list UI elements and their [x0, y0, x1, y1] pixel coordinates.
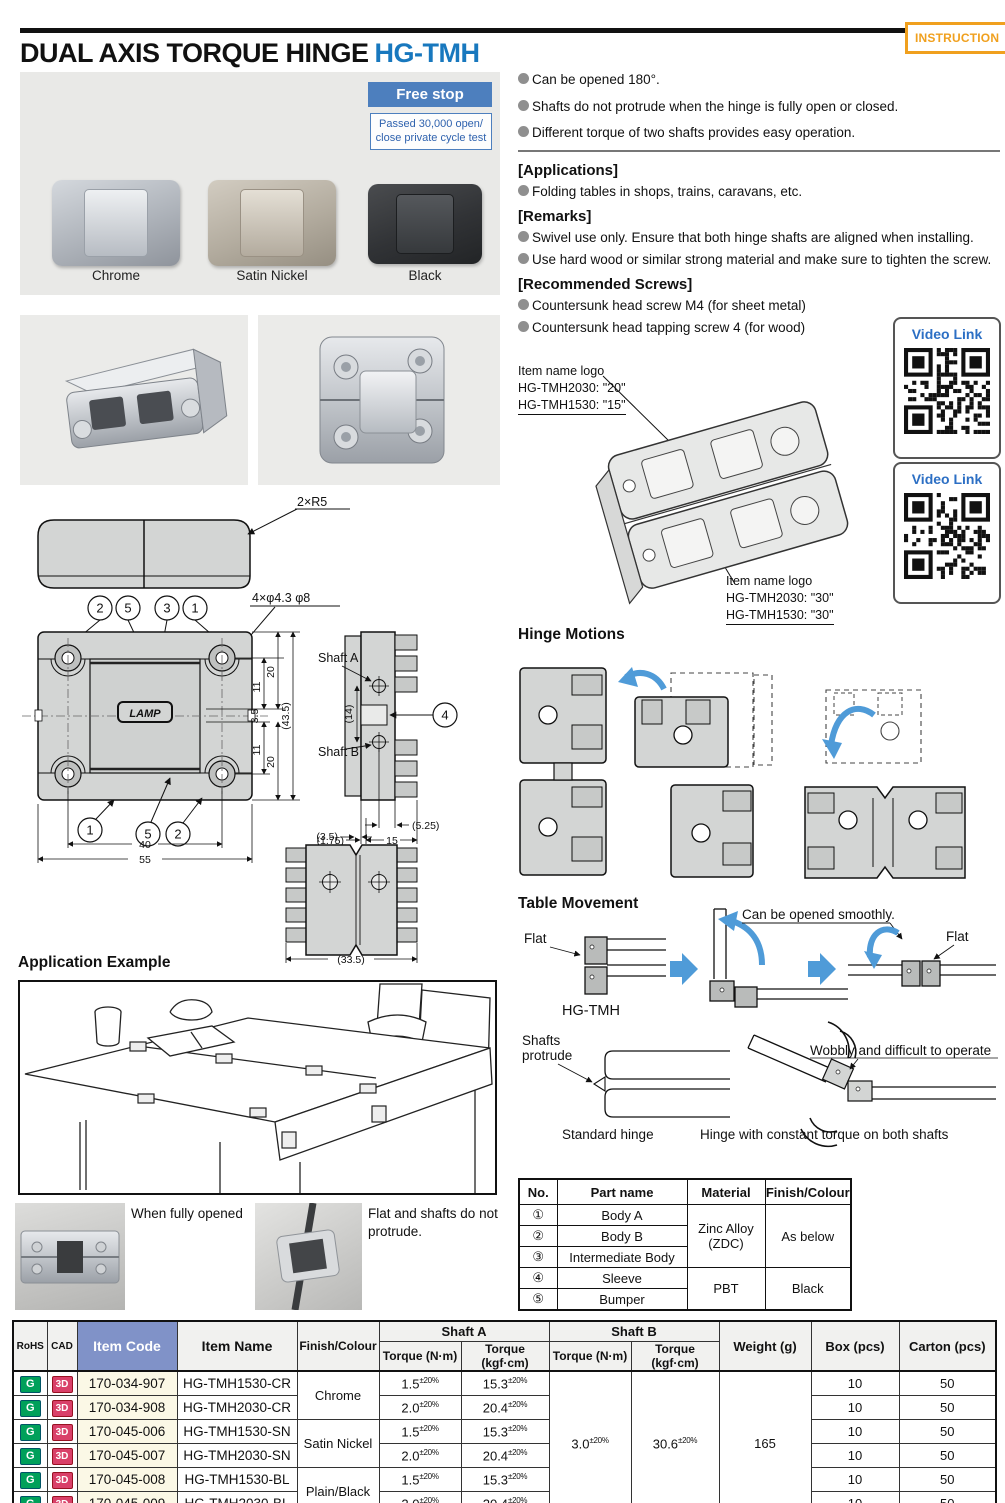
video-link-box[interactable]: Video Link: [893, 317, 1001, 459]
col-shaft-b: Shaft B: [549, 1321, 719, 1342]
parts-row: ① Body A Zinc Alloy (ZDC) As below: [519, 1205, 851, 1226]
feature-text: Can be opened 180°.: [532, 70, 660, 90]
hinge-motions-diagram: [518, 655, 1000, 890]
dim-20-top: 20: [265, 666, 277, 678]
annotation-line: Item name logo: [726, 573, 834, 590]
video-link-label[interactable]: Video Link: [895, 326, 999, 342]
carton-cell: 50: [899, 1371, 996, 1396]
torque-value: 2.0: [401, 1496, 419, 1503]
col-no: No.: [519, 1179, 557, 1205]
finish-label-chrome: Chrome: [52, 268, 180, 283]
rohs-badge[interactable]: G: [20, 1376, 41, 1393]
carton-cell: 50: [899, 1444, 996, 1468]
item-name-cell: HG-TMH2030-BL: [177, 1492, 297, 1503]
part-finish: As below: [765, 1205, 851, 1268]
free-stop-badge: Free stop: [368, 82, 492, 107]
caption-flat: Flat and shafts do not protrude.: [368, 1205, 498, 1241]
parts-header-row: No. Part name Material Finish/Colour: [519, 1179, 851, 1205]
col-shaft-a: Shaft A: [379, 1321, 549, 1342]
finish-cell: Plain/Black: [297, 1468, 379, 1503]
dim-55: 55: [139, 854, 151, 866]
dimension-lines: [206, 632, 300, 800]
torque-value: 15.3: [483, 1472, 508, 1487]
cad-cell: 3D: [47, 1371, 77, 1396]
finish-cell: Chrome: [297, 1371, 379, 1420]
col-weight: Weight (g): [719, 1321, 811, 1371]
spec-row: G 3D 170-045-008 HG-TMH1530-BL Plain/Bla…: [13, 1468, 996, 1492]
tolerance: ±20%: [508, 1496, 527, 1503]
tm-closed: [585, 937, 666, 994]
torque-value: 2.0: [401, 1400, 419, 1415]
hinge-side-photo-illustration: [20, 315, 248, 485]
torque-value: 20.4: [483, 1400, 508, 1415]
screws-heading: [Recommended Screws]: [518, 276, 1000, 293]
cad-3d-badge[interactable]: 3D: [52, 1400, 73, 1417]
tolerance: ±20%: [508, 1448, 527, 1457]
dim-1-75: (1.75): [317, 835, 344, 847]
dim-3-5: 3.5: [249, 709, 261, 724]
part-name: Body A: [557, 1205, 687, 1226]
tolerance: ±20%: [419, 1472, 438, 1481]
col-finish: Finish/Colour: [765, 1179, 851, 1205]
spec-row: G 3D 170-045-007 HG-TMH2030-SN 2.0±20% 2…: [13, 1444, 996, 1468]
carton-cell: 50: [899, 1420, 996, 1444]
item-name-cell: HG-TMH1530-SN: [177, 1420, 297, 1444]
hinge-knuckle: [84, 189, 148, 257]
shafts-protrude-label: protrude: [522, 1048, 572, 1063]
screws-text: Countersunk head screw M4 (for sheet met…: [532, 296, 806, 316]
dim-holes: 4×φ4.3 φ8: [252, 591, 310, 605]
col-finish: Finish/Colour: [297, 1321, 379, 1371]
feature-text: Different torque of two shafts provides …: [532, 123, 855, 143]
item-name-cell: HG-TMH2030-CR: [177, 1396, 297, 1420]
application-example-heading: Application Example: [18, 954, 170, 972]
box-cell: 10: [811, 1371, 899, 1396]
width-dimensions: [38, 788, 252, 863]
rohs-badge[interactable]: G: [20, 1424, 41, 1441]
item-code-cell: 170-034-908: [77, 1396, 177, 1420]
finish-cell: Satin Nickel: [297, 1420, 379, 1468]
part-no: ④: [519, 1268, 557, 1289]
torque-value: 3.0: [571, 1436, 589, 1451]
spec-row: G 3D 170-034-907 HG-TMH1530-CR Chrome 1.…: [13, 1371, 996, 1396]
dim-2xr5: 2×R5: [297, 495, 327, 509]
flat-illustration: [255, 1203, 362, 1310]
cad-3d-badge[interactable]: 3D: [52, 1424, 73, 1441]
qr-code: [904, 493, 990, 579]
part-no: ①: [519, 1205, 557, 1226]
col-part-name: Part name: [557, 1179, 687, 1205]
tolerance: ±20%: [508, 1472, 527, 1481]
screws-item: Countersunk head screw M4 (for sheet met…: [518, 296, 1000, 316]
box-cell: 10: [811, 1444, 899, 1468]
callout-1: 1: [191, 601, 198, 616]
tolerance: ±20%: [419, 1424, 438, 1433]
hinge-photo-black: [368, 184, 482, 264]
torque-a-nm-cell: 2.0±20%: [379, 1492, 461, 1503]
step-arrow: [808, 953, 836, 985]
callout-5b: 5: [144, 827, 151, 842]
caption-fully-opened: When fully opened: [131, 1205, 249, 1223]
part-no: ③: [519, 1247, 557, 1268]
torque-value: 20.4: [483, 1496, 508, 1503]
smooth-label: Can be opened smoothly.: [742, 907, 895, 922]
constant-torque-caption: Hinge with constant torque on both shaft…: [700, 1127, 949, 1142]
dim-5-25: (5.25): [412, 820, 439, 832]
section-divider: [518, 150, 1000, 152]
spec-table: RoHS CAD Item Code Item Name Finish/Colo…: [12, 1320, 997, 1503]
bottom-view: [286, 845, 417, 955]
tolerance: ±20%: [508, 1376, 527, 1385]
dim-3-5-bottom: (3.5): [316, 831, 338, 843]
video-link-label[interactable]: Video Link: [895, 471, 999, 487]
torque-a-nm-cell: 1.5±20%: [379, 1420, 461, 1444]
remarks-item: Use hard wood or similar strong material…: [518, 250, 1000, 270]
item-code-cell: 170-034-907: [77, 1371, 177, 1396]
bullet-icon: [518, 185, 529, 196]
dim-20-bottom: 20: [265, 756, 277, 768]
feature-item: Can be opened 180°.: [518, 70, 996, 90]
torque-a-nm-cell: 1.5±20%: [379, 1371, 461, 1396]
item-logo-annotation-top: Item name logo HG-TMH2030: "20" HG-TMH15…: [518, 363, 626, 415]
cad-cell: 3D: [47, 1396, 77, 1420]
shafts-protrude-label: Shafts: [522, 1033, 561, 1048]
flat-label-left: Flat: [524, 931, 547, 946]
torque-value: 1.5: [401, 1424, 419, 1439]
weight-cell: 165: [719, 1371, 811, 1503]
col-torque-kgf-a: Torque (kgf·cm): [461, 1342, 549, 1372]
cycle-test-note: Passed 30,000 open/ close private cycle …: [370, 113, 492, 150]
hinge-front-photo-illustration: [258, 315, 500, 485]
tm-wobbly-hinge: [748, 1022, 996, 1146]
col-material: Material: [687, 1179, 765, 1205]
hinge-knuckle: [396, 194, 454, 254]
spec-row: G 3D 170-045-009 HG-TMH2030-BL 2.0±20% 2…: [13, 1492, 996, 1503]
rohs-cell: G: [13, 1444, 47, 1468]
box-cell: 10: [811, 1492, 899, 1503]
shaft-a-label: Shaft A: [318, 651, 359, 665]
col-torque-kgf-b: Torque (kgf·cm): [631, 1342, 719, 1372]
cad-cell: 3D: [47, 1420, 77, 1444]
page-title: DUAL AXIS TORQUE HINGEHG-TMH: [20, 38, 480, 69]
torque-value: 30.6: [653, 1436, 678, 1451]
part-finish: Black: [765, 1268, 851, 1311]
carton-cell: 50: [899, 1396, 996, 1420]
torque-a-nm-cell: 2.0±20%: [379, 1444, 461, 1468]
fully-opened-illustration: [15, 1203, 125, 1310]
torque-a-kgf-cell: 15.3±20%: [461, 1420, 549, 1444]
torque-value: 15.3: [483, 1424, 508, 1439]
dim-43-5: (43.5): [280, 702, 292, 729]
photo-fully-opened: [15, 1203, 125, 1310]
annotation-line: HG-TMH1530: "15": [518, 397, 626, 415]
tm-standard-hinge: [594, 1051, 730, 1117]
col-item-code: Item Code: [77, 1321, 177, 1371]
photo-flat: [255, 1203, 362, 1310]
item-name-cell: HG-TMH1530-CR: [177, 1371, 297, 1396]
annotation-line: HG-TMH2030: "20": [518, 380, 626, 397]
motion-open: [805, 690, 965, 878]
feature-list: Can be opened 180°. Shafts do not protru…: [518, 70, 996, 150]
torque-a-kgf-cell: 20.4±20%: [461, 1396, 549, 1420]
bullet-icon: [518, 253, 529, 264]
rohs-cell: G: [13, 1492, 47, 1503]
callout-1b: 1: [86, 823, 93, 838]
tm-opening: [710, 909, 848, 1007]
screws-text: Countersunk head tapping screw 4 (for wo…: [532, 318, 805, 338]
part-name: Intermediate Body: [557, 1247, 687, 1268]
part-no: ②: [519, 1226, 557, 1247]
col-torque-nm-b: Torque (N·m): [549, 1342, 631, 1372]
part-no: ⑤: [519, 1289, 557, 1311]
carton-cell: 50: [899, 1468, 996, 1492]
item-code-cell: 170-045-009: [77, 1492, 177, 1503]
bottom-width-dim: [286, 943, 417, 963]
hinge-knuckle: [240, 189, 304, 257]
applications-item: Folding tables in shops, trains, caravan…: [518, 182, 1000, 202]
part-material: Zinc Alloy (ZDC): [687, 1205, 765, 1268]
rohs-cell: G: [13, 1371, 47, 1396]
callout-3: 3: [163, 601, 170, 616]
box-cell: 10: [811, 1468, 899, 1492]
shaft-b-label: Shaft B: [318, 745, 359, 759]
callout-4: 4: [441, 708, 448, 723]
annotation-line: HG-TMH2030: "30": [726, 590, 834, 607]
bullet-icon: [518, 73, 529, 84]
spec-row: G 3D 170-045-006 HG-TMH1530-SN Satin Nic…: [13, 1420, 996, 1444]
col-cad: CAD: [47, 1321, 77, 1371]
part-name: Bumper: [557, 1289, 687, 1311]
annotation-line: HG-TMH1530: "30": [726, 607, 834, 625]
wobbly-label: Wobbly and difficult to operate: [810, 1043, 991, 1058]
cad-cell: 3D: [47, 1492, 77, 1503]
torque-value: 1.5: [401, 1376, 419, 1391]
instruction-badge[interactable]: INSTRUCTION: [905, 22, 1005, 54]
callout-circles-bottom: 1 5 2: [78, 778, 202, 846]
application-example-box: [18, 980, 497, 1195]
dim-33-5: (33.5): [337, 954, 364, 966]
side-dimensions: [346, 748, 417, 844]
finish-label-black: Black: [368, 268, 482, 283]
torque-value: 2.0: [401, 1448, 419, 1463]
tolerance: ±20%: [419, 1448, 438, 1457]
callout-2: 2: [96, 601, 103, 616]
applications-heading: [Applications]: [518, 162, 1000, 179]
rohs-cell: G: [13, 1396, 47, 1420]
application-example-illustration: [20, 982, 495, 1193]
bullet-icon: [518, 321, 529, 332]
top-rule: [20, 28, 986, 33]
hg-tmh-label: HG-TMH: [562, 1003, 620, 1019]
torque-b-kgf-cell: 30.6±20%: [631, 1371, 719, 1503]
torque-a-kgf-cell: 15.3±20%: [461, 1468, 549, 1492]
tolerance: ±20%: [508, 1424, 527, 1433]
bullet-icon: [518, 231, 529, 242]
tm-open-flat: [848, 929, 996, 986]
box-cell: 10: [811, 1396, 899, 1420]
feature-item: Different torque of two shafts provides …: [518, 123, 996, 143]
callout-5: 5: [124, 601, 131, 616]
callout-circles-top: 2 5 3 1: [76, 596, 218, 658]
hinge-photo-satin-nickel: [208, 180, 336, 266]
cad-3d-badge[interactable]: 3D: [52, 1448, 73, 1465]
feature-item: Shafts do not protrude when the hinge is…: [518, 97, 996, 117]
finish-label-satin-nickel: Satin Nickel: [208, 268, 336, 283]
rohs-badge[interactable]: G: [20, 1448, 41, 1465]
parts-table: No. Part name Material Finish/Colour ① B…: [518, 1178, 852, 1311]
bullet-icon: [518, 126, 529, 137]
remarks-heading: [Remarks]: [518, 208, 1000, 225]
remarks-item: Swivel use only. Ensure that both hinge …: [518, 228, 1000, 248]
remarks-text: Swivel use only. Ensure that both hinge …: [532, 228, 974, 248]
cad-cell: 3D: [47, 1444, 77, 1468]
spec-row: G 3D 170-034-908 HG-TMH2030-CR 2.0±20% 2…: [13, 1396, 996, 1420]
part-name: Sleeve: [557, 1268, 687, 1289]
tolerance: ±20%: [678, 1436, 697, 1445]
tolerance: ±20%: [508, 1400, 527, 1409]
technical-drawing: 2×R5 2 5 3 1 4×φ4.3 φ8: [20, 488, 510, 968]
col-carton: Carton (pcs): [899, 1321, 996, 1371]
product-code: HG-TMH: [375, 38, 480, 68]
standard-hinge-caption: Standard hinge: [562, 1127, 654, 1142]
video-link-box[interactable]: Video Link: [893, 462, 1001, 604]
cad-3d-badge[interactable]: 3D: [52, 1472, 73, 1489]
col-rohs: RoHS: [13, 1321, 47, 1371]
item-code-cell: 170-045-006: [77, 1420, 177, 1444]
item-name-cell: HG-TMH1530-BL: [177, 1468, 297, 1492]
part-material: PBT: [687, 1268, 765, 1311]
product-photo-side: [20, 315, 248, 485]
side-view: [345, 632, 417, 800]
annotation-line: Item name logo: [518, 363, 626, 380]
cad-3d-badge[interactable]: 3D: [52, 1496, 73, 1503]
cad-3d-badge[interactable]: 3D: [52, 1376, 73, 1393]
item-logo-annotation-bottom: Item name logo HG-TMH2030: "30" HG-TMH15…: [726, 573, 834, 625]
tolerance: ±20%: [589, 1436, 608, 1445]
rohs-cell: G: [13, 1468, 47, 1492]
rohs-badge[interactable]: G: [20, 1400, 41, 1417]
rohs-badge[interactable]: G: [20, 1496, 41, 1503]
torque-a-nm-cell: 1.5±20%: [379, 1468, 461, 1492]
motion-mid: [618, 667, 772, 877]
dim-11-top: 11: [251, 681, 263, 692]
remarks-text: Use hard wood or similar strong material…: [532, 250, 991, 270]
col-item-name: Item Name: [177, 1321, 297, 1371]
info-sections: [Applications] Folding tables in shops, …: [518, 156, 1000, 341]
dim-15: 15: [386, 835, 398, 847]
col-torque-nm-a: Torque (N·m): [379, 1342, 461, 1372]
torque-value: 20.4: [483, 1448, 508, 1463]
catalog-page: DUAL AXIS TORQUE HINGEHG-TMH INSTRUCTION…: [0, 0, 1005, 1503]
tolerance: ±20%: [419, 1400, 438, 1409]
lamp-logo: LAMP: [129, 708, 161, 720]
rohs-badge[interactable]: G: [20, 1472, 41, 1489]
page-title-text: DUAL AXIS TORQUE HINGE: [20, 38, 369, 68]
col-box: Box (pcs): [811, 1321, 899, 1371]
torque-a-nm-cell: 2.0±20%: [379, 1396, 461, 1420]
torque-a-kgf-cell: 15.3±20%: [461, 1371, 549, 1396]
bullet-icon: [518, 299, 529, 310]
dim-40: 40: [139, 839, 151, 851]
tolerance: ±20%: [419, 1376, 438, 1385]
torque-value: 1.5: [401, 1472, 419, 1487]
box-cell: 10: [811, 1420, 899, 1444]
item-code-cell: 170-045-008: [77, 1468, 177, 1492]
dim-14: (14): [343, 705, 355, 724]
part-name: Body B: [557, 1226, 687, 1247]
parts-row: ④ Sleeve PBT Black: [519, 1268, 851, 1289]
step-arrow: [670, 953, 698, 985]
torque-b-nm-cell: 3.0±20%: [549, 1371, 631, 1503]
dim-11-bottom: 11: [251, 744, 263, 755]
cad-cell: 3D: [47, 1468, 77, 1492]
product-photo-front: [258, 315, 500, 485]
bullet-icon: [518, 100, 529, 111]
motion-closed: [520, 668, 606, 875]
carton-cell: 50: [899, 1492, 996, 1503]
feature-text: Shafts do not protrude when the hinge is…: [532, 97, 898, 117]
qr-code: [904, 348, 990, 434]
spec-header-row: RoHS CAD Item Code Item Name Finish/Colo…: [13, 1321, 996, 1342]
tolerance: ±20%: [419, 1496, 438, 1503]
flat-label-right: Flat: [946, 929, 969, 944]
item-name-cell: HG-TMH2030-SN: [177, 1444, 297, 1468]
hinge-photo-chrome: [52, 180, 180, 266]
torque-a-kgf-cell: 20.4±20%: [461, 1444, 549, 1468]
product-photo-panel: Free stop Passed 30,000 open/ close priv…: [20, 72, 500, 295]
table-movement-heading: Table Movement: [518, 895, 638, 913]
torque-a-kgf-cell: 20.4±20%: [461, 1492, 549, 1503]
rohs-cell: G: [13, 1420, 47, 1444]
applications-text: Folding tables in shops, trains, caravan…: [532, 182, 802, 202]
hinge-motions-heading: Hinge Motions: [518, 626, 625, 644]
torque-value: 15.3: [483, 1376, 508, 1391]
item-code-cell: 170-045-007: [77, 1444, 177, 1468]
table-movement-diagram: Flat HG-TMH Can be opened smoothly.: [518, 903, 1000, 1148]
callout-2b: 2: [174, 827, 181, 842]
